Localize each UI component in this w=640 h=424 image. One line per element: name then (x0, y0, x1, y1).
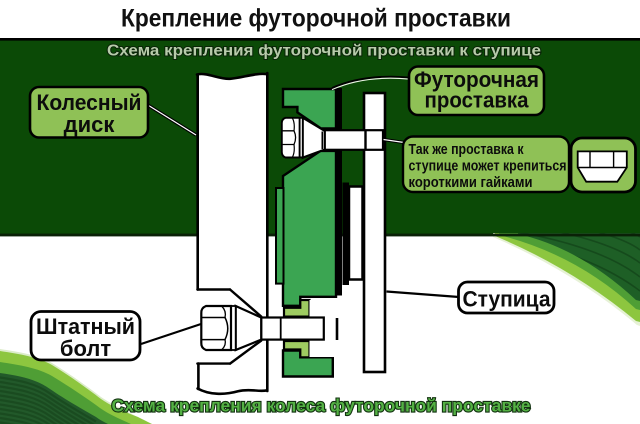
svg-text:Так же проставка к: Так же проставка к (409, 142, 525, 158)
svg-text:ступице может крепиться: ступице может крепиться (409, 159, 567, 175)
svg-text:проставка: проставка (425, 88, 530, 113)
svg-text:болт: болт (60, 336, 111, 361)
svg-text:Крепление футорочной проставки: Крепление футорочной проставки (121, 5, 511, 33)
svg-text:Схема крепления колеса футороч: Схема крепления колеса футорочной проста… (112, 396, 531, 416)
svg-text:короткими гайками: короткими гайками (409, 175, 533, 191)
svg-text:диск: диск (64, 112, 116, 137)
svg-text:Схема крепления футорочной про: Схема крепления футорочной проставки к с… (107, 43, 541, 60)
svg-text:Ступица: Ступица (463, 287, 552, 312)
